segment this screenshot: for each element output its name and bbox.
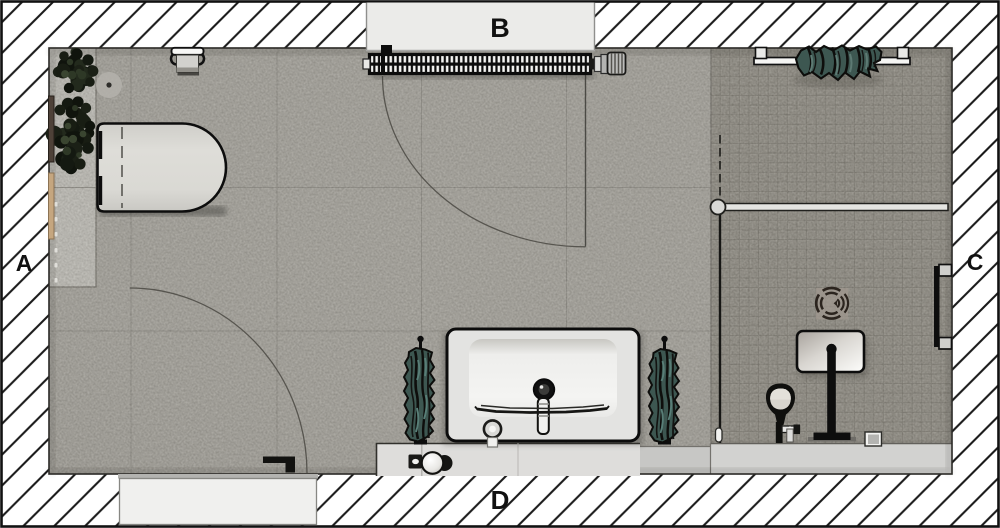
svg-text:A: A [16, 250, 33, 276]
svg-text:D: D [491, 485, 510, 515]
svg-text:B: B [490, 13, 510, 43]
svg-text:C: C [967, 249, 984, 275]
